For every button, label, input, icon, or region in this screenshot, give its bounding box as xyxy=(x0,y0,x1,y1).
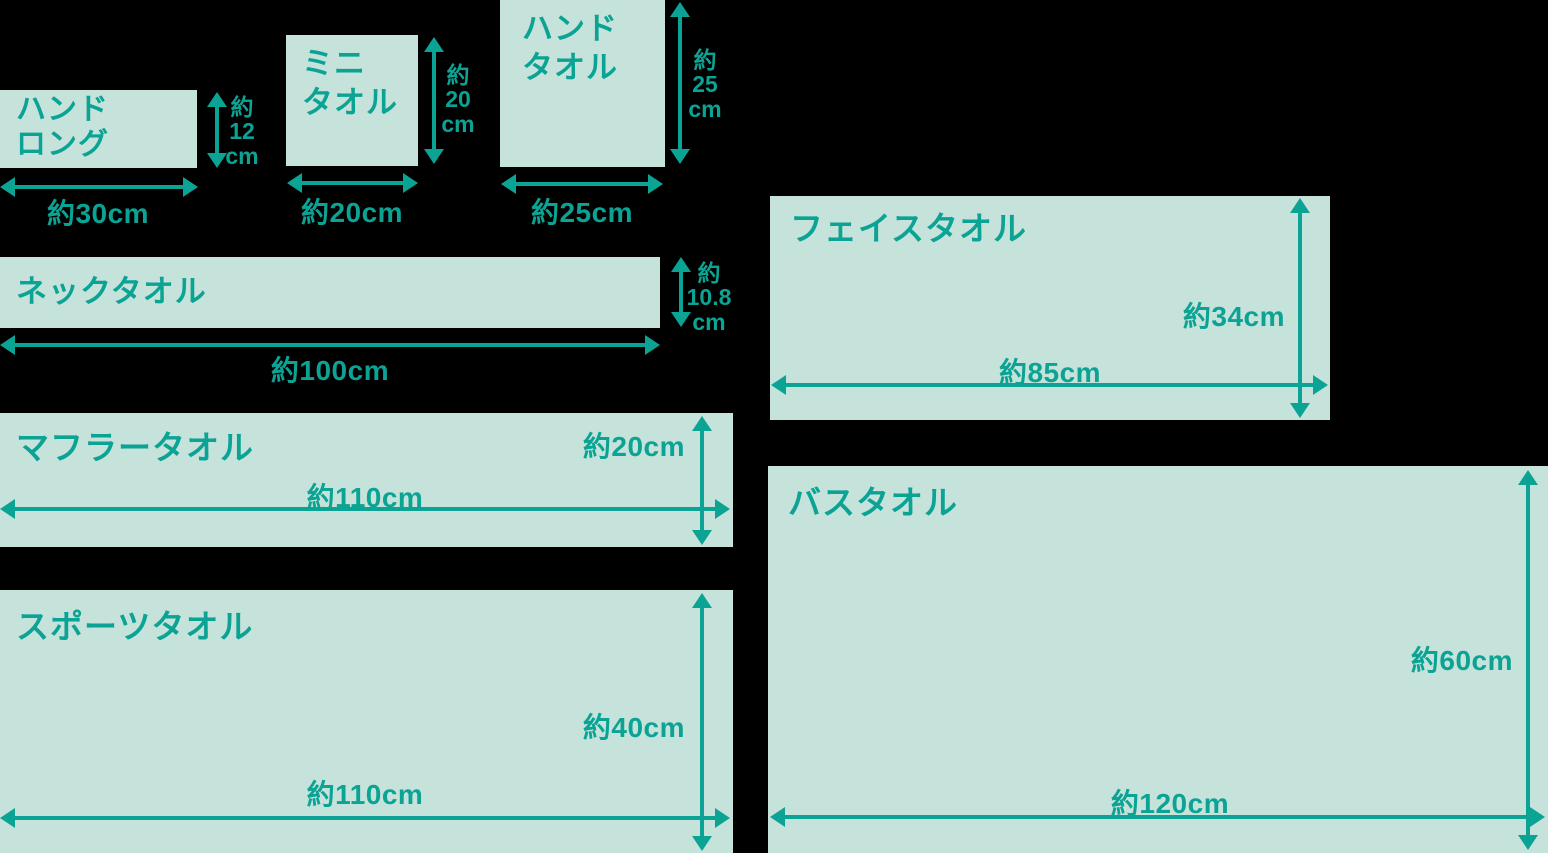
dimension-line xyxy=(700,421,704,540)
height-label: 約34cm xyxy=(1153,295,1285,335)
width-label: 約85cm xyxy=(975,351,1125,391)
height-label: 約 10.8 cm xyxy=(683,261,735,334)
towel-rect-neck-towel: ネックタオル xyxy=(0,257,660,328)
height-label: 約40cm xyxy=(553,706,685,746)
towel-name-neck-towel: ネックタオル xyxy=(16,273,207,312)
dimension-line xyxy=(5,816,725,820)
width-dimension-arrow xyxy=(287,173,418,193)
height-label: 約60cm xyxy=(1381,639,1513,679)
dimension-line xyxy=(215,97,219,163)
towel-rect-hand-long: ハンド ロング xyxy=(0,90,197,168)
towel-rect-mini-towel: ミニ タオル xyxy=(286,35,418,166)
height-label: 約 12 cm xyxy=(222,95,262,168)
towel-name-hand-long: ハンド ロング xyxy=(16,93,109,162)
towel-name-bath-towel: バスタオル xyxy=(788,482,958,523)
dimension-line xyxy=(506,182,658,186)
towel-size-diagram: ハンド ロング 約 12 cm 約30cm ミニ タオル 約 20 cm 約20… xyxy=(0,0,1548,853)
dimension-line xyxy=(1526,475,1530,845)
width-label: 約110cm xyxy=(290,773,440,813)
height-label: 約 20 cm xyxy=(438,63,478,136)
height-label: 約20cm xyxy=(553,425,685,465)
width-label: 約25cm xyxy=(512,191,652,231)
towel-name-hand-towel: ハンド タオル xyxy=(522,10,618,88)
towel-name-sports-towel: スポーツタオル xyxy=(16,606,253,647)
width-label: 約20cm xyxy=(282,191,422,231)
dimension-line xyxy=(678,7,682,159)
towel-name-muffler-towel: マフラータオル xyxy=(16,427,254,468)
dimension-line xyxy=(5,185,193,189)
dimension-line xyxy=(292,181,413,185)
dimension-line xyxy=(5,343,655,347)
width-label: 約110cm xyxy=(290,476,440,516)
width-label: 約120cm xyxy=(1090,782,1250,822)
towel-name-mini-towel: ミニ タオル xyxy=(302,45,398,123)
width-label: 約30cm xyxy=(28,192,168,232)
dimension-line xyxy=(432,42,436,159)
height-label: 約 25 cm xyxy=(685,48,725,121)
towel-rect-hand-towel: ハンド タオル xyxy=(500,0,665,167)
height-dimension-arrow xyxy=(692,416,712,545)
height-dimension-arrow xyxy=(1518,470,1538,850)
towel-name-face-towel: フェイスタオル xyxy=(790,208,1027,249)
width-label: 約100cm xyxy=(255,349,405,389)
